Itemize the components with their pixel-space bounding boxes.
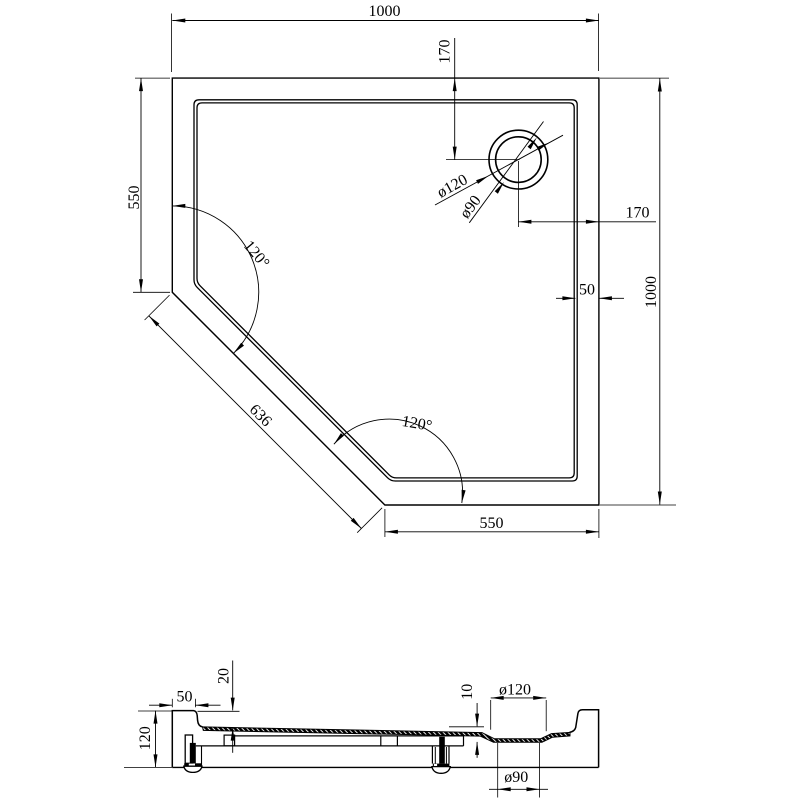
svg-text:ø120: ø120 — [499, 681, 531, 698]
svg-text:550: 550 — [480, 515, 504, 532]
svg-text:550: 550 — [126, 186, 143, 210]
svg-text:120: 120 — [137, 726, 154, 750]
svg-text:170: 170 — [437, 40, 454, 64]
svg-text:1000: 1000 — [369, 3, 401, 20]
svg-text:50: 50 — [579, 282, 595, 299]
svg-text:20: 20 — [215, 668, 232, 684]
svg-text:170: 170 — [626, 205, 650, 222]
svg-text:10: 10 — [459, 684, 476, 700]
svg-text:1000: 1000 — [643, 276, 660, 308]
svg-text:ø90: ø90 — [504, 769, 528, 786]
svg-text:50: 50 — [177, 689, 193, 706]
